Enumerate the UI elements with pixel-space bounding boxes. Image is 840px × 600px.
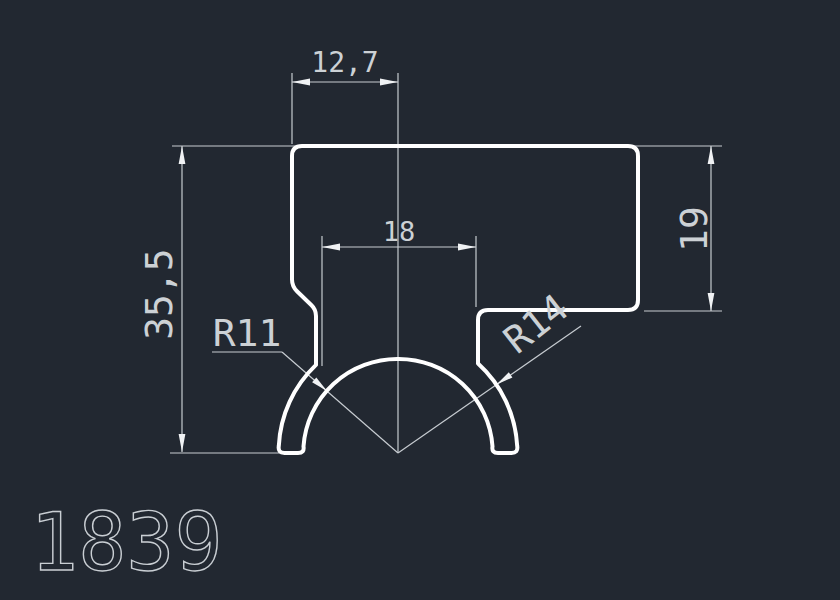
cad-drawing-canvas: 12,7 18 35,5 19 R11 R14 1839 bbox=[0, 0, 840, 600]
part-number-text: 1839 bbox=[30, 496, 223, 589]
radius-label-r11: R11 bbox=[213, 311, 282, 355]
dim-text-overall-height: 35,5 bbox=[137, 248, 181, 340]
dim-text-right-height: 19 bbox=[672, 206, 716, 252]
dim-text-top-width: 12,7 bbox=[311, 46, 378, 79]
dim-text-neck-width: 18 bbox=[383, 216, 416, 247]
cad-drawing-viewport: 12,7 18 35,5 19 R11 R14 1839 bbox=[0, 0, 840, 600]
